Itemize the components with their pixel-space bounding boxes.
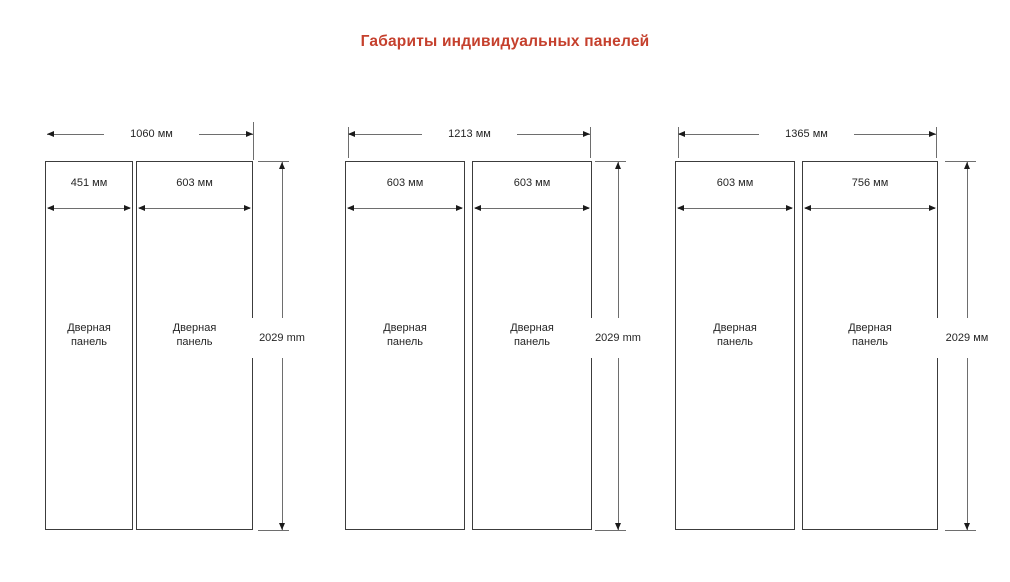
panel-name: Дверная панель	[803, 321, 937, 349]
panel-name-text: Дверная панель	[838, 321, 902, 349]
arrow-left-icon	[804, 205, 811, 211]
door-panel: 756 мм Дверная панель	[802, 161, 938, 530]
arrow-right-icon	[929, 205, 936, 211]
panel-name: Дверная панель	[676, 321, 794, 349]
arrow-down-icon	[964, 523, 970, 530]
arrow-left-icon	[677, 205, 684, 211]
panel-name-text: Дверная панель	[703, 321, 767, 349]
panel-width-dim-line	[678, 208, 792, 209]
arrow-up-icon	[964, 162, 970, 169]
arrow-right-icon	[786, 205, 793, 211]
height-label: 2029 мм	[937, 318, 997, 358]
panel-group-3: 1365 мм 603 мм Дверная панель 756 мм Две…	[0, 0, 1010, 582]
panel-width-label: 756 мм	[803, 177, 937, 189]
panel-width-label: 603 мм	[676, 177, 794, 189]
dim-extension-tick	[936, 127, 937, 158]
arrow-left-icon	[678, 131, 685, 137]
height-dim-bottom-tick	[945, 530, 976, 531]
diagram-canvas: Габариты индивидуальных панелей 1060 мм …	[0, 0, 1010, 582]
door-panel: 603 мм Дверная панель	[675, 161, 795, 530]
panel-width-dim-line	[805, 208, 935, 209]
arrow-right-icon	[929, 131, 936, 137]
total-width-label: 1365 мм	[759, 127, 854, 141]
height-dim-top-tick	[945, 161, 976, 162]
